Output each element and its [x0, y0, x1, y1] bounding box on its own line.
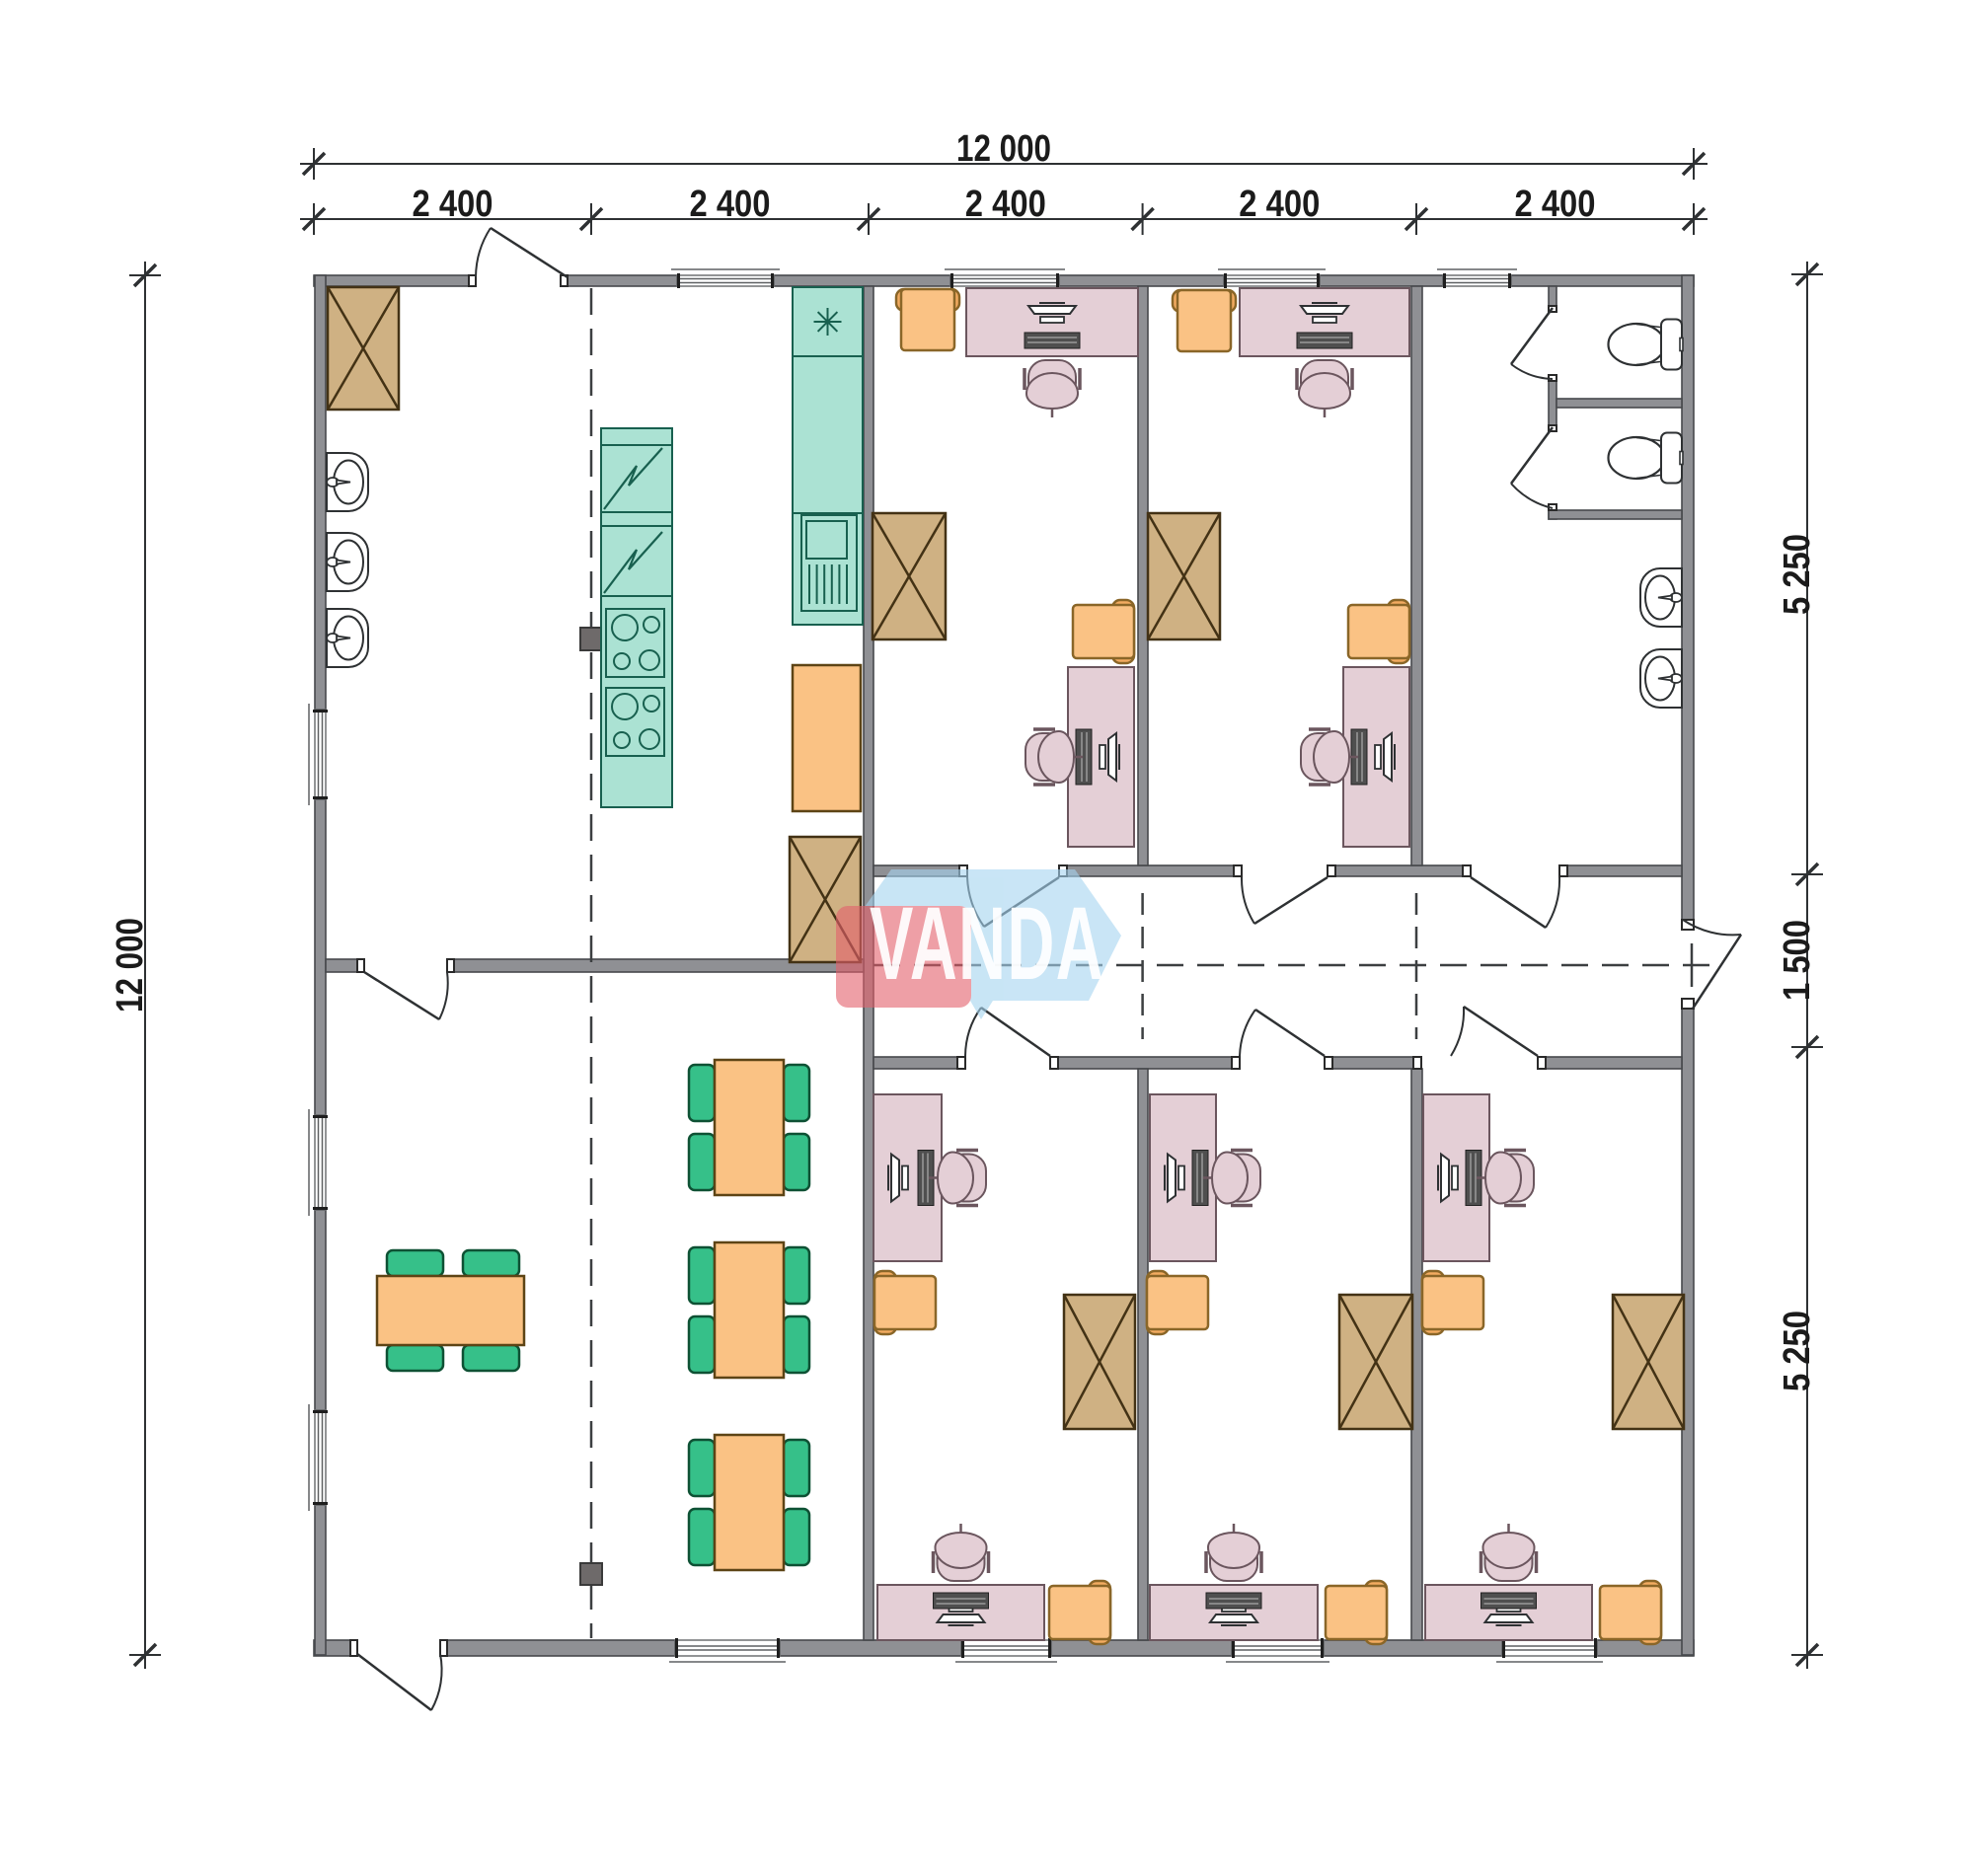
svg-text:2 400: 2 400	[413, 184, 493, 225]
svg-text:2 400: 2 400	[1239, 184, 1320, 225]
svg-text:12 000: 12 000	[110, 918, 151, 1013]
svg-text:12 000: 12 000	[956, 128, 1051, 170]
svg-text:2 400: 2 400	[690, 184, 771, 225]
svg-text:5 250: 5 250	[1777, 1311, 1818, 1391]
svg-text:2 400: 2 400	[1515, 184, 1596, 225]
svg-text:2 400: 2 400	[965, 184, 1046, 225]
svg-text:5 250: 5 250	[1777, 534, 1818, 615]
svg-text:VANDA: VANDA	[870, 886, 1104, 1002]
svg-text:1 500: 1 500	[1777, 920, 1818, 1001]
